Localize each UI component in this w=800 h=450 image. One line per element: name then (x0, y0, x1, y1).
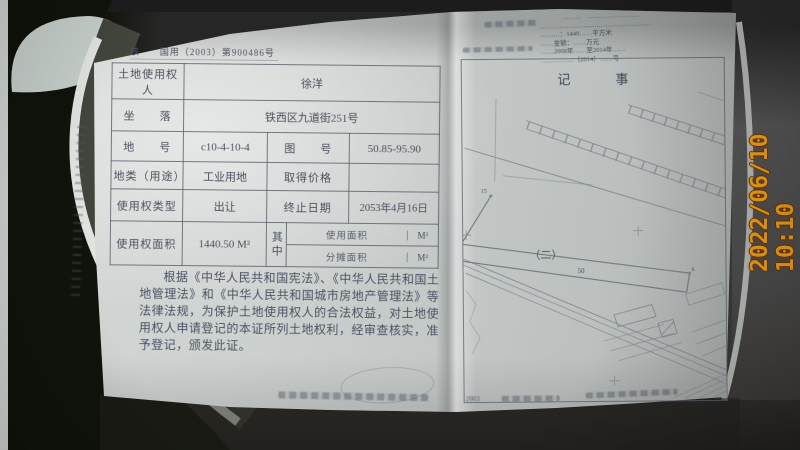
cadastral-map: （二） 50 15 6 (462, 92, 727, 400)
sheet-no-label: 图 号 (267, 132, 349, 163)
holder-value: 徐洋 (184, 64, 440, 103)
railway-b-ties (527, 124, 725, 196)
cluster-lines (604, 324, 682, 361)
serial-number: 核 国用（2003）第900486号 (130, 44, 279, 61)
price-value (349, 163, 439, 192)
parcel-no-label: 地 号 (111, 131, 183, 162)
right-rects (686, 283, 727, 356)
footer-year: 2003 (466, 395, 480, 403)
survey-cross (462, 230, 471, 240)
survey-cross (609, 376, 619, 386)
declaration-paragraph: 根据《中华人民共和国宪法》、《中华人民共和国土地管理法》和《中华人民共和国城市房… (139, 269, 440, 357)
corner-hatch (672, 374, 726, 398)
parcel-no-value: c10-4-10-4 (183, 132, 267, 163)
area-breakdown-cell: 使用面积 M² 分摊面积 M² (286, 223, 438, 269)
notes-box: 记 事 (461, 57, 728, 403)
railway-a-rail (628, 104, 724, 137)
table-row-tenure: 使用权类型 出让 终止日期 2053年4月16日 (111, 189, 439, 224)
handwriting-smudge-1 (484, 20, 536, 28)
footer-smudge-right-1 (502, 395, 560, 402)
road-line-short (503, 175, 593, 186)
certificate-right-page: ……… …………………… …………………………………………… ………：1440…… (454, 7, 735, 411)
land-register-table: 土地使用权人 徐洋 坐 落 铁西区九道街251号 地 号 c10-4-10-4 … (110, 62, 441, 268)
table-row-holder: 土地使用权人 徐洋 (112, 63, 440, 102)
notes-title: 记 事 (462, 68, 724, 89)
survey-cross (633, 226, 643, 236)
road-band (463, 257, 726, 372)
land-use-label: 地类（用途） (111, 161, 183, 190)
handwriting-smudge-2 (463, 46, 533, 53)
building-parallelogram (614, 304, 656, 326)
land-use-value: 工业用地 (183, 162, 267, 191)
parcel-vertex (688, 272, 690, 274)
parcel-vertex (490, 195, 492, 197)
railway-a-ties (629, 109, 724, 142)
pencil-jags (466, 290, 481, 354)
area-value: 1440.50 M² (182, 222, 266, 267)
use-area-row: 使用面积 M² (287, 223, 438, 247)
table-row-location: 坐 落 铁西区九道街251号 (111, 99, 439, 134)
location-label: 坐 落 (111, 99, 183, 132)
among-label: 其中 (266, 222, 286, 266)
camera-timestamp: 2022/06/10 10:10 (747, 54, 777, 272)
use-area-label: 使用面积 (287, 227, 407, 242)
shared-area-label: 分摊面积 (287, 249, 407, 264)
shared-area-unit: M² (407, 252, 438, 262)
map-vertical-line (494, 98, 497, 182)
table-row-parcel: 地 号 c10-4-10-4 图 号 50.85-95.90 (111, 131, 439, 164)
railway-b-rail (528, 128, 725, 200)
table-row-area: 使用权面积 1440.50 M² 其中 使用面积 M² 分摊面积 M² (110, 221, 438, 268)
area-label: 使用权面积 (110, 221, 182, 266)
issuer-footer-smudge (278, 391, 428, 401)
photo-of-land-certificate: 核 国用（2003）第900486号 土地使用权人 徐洋 坐 落 铁西区九道街2… (0, 0, 800, 450)
railway-a-rail (630, 113, 724, 146)
tenure-label: 使用权类型 (111, 189, 183, 222)
location-value: 铁西区九道街251号 (183, 100, 439, 135)
map-section-label: （二） (529, 248, 562, 261)
road-line (464, 146, 725, 228)
sheet-no-value: 50.85-95.90 (349, 133, 439, 164)
expiry-label: 终止日期 (267, 190, 349, 223)
holder-label: 土地使用权人 (112, 63, 184, 100)
certificate-left-page: 核 国用（2003）第900486号 土地使用权人 徐洋 坐 落 铁西区九道街2… (98, 38, 448, 414)
tenure-value: 出让 (183, 190, 267, 223)
use-area-unit: M² (407, 230, 438, 240)
shared-area-row: 分摊面积 M² (287, 245, 438, 268)
map-plot-number: 50 (578, 267, 586, 275)
expiry-value: 2053年4月16日 (349, 191, 439, 224)
price-label: 取得价格 (267, 162, 349, 191)
map-vertex-label-6: 6 (692, 267, 695, 273)
table-row-landuse: 地类（用途） 工业用地 取得价格 (111, 161, 439, 192)
railway-a-ext (698, 92, 724, 101)
road-band (463, 263, 726, 378)
map-vertex-label-15: 15 (481, 189, 487, 195)
